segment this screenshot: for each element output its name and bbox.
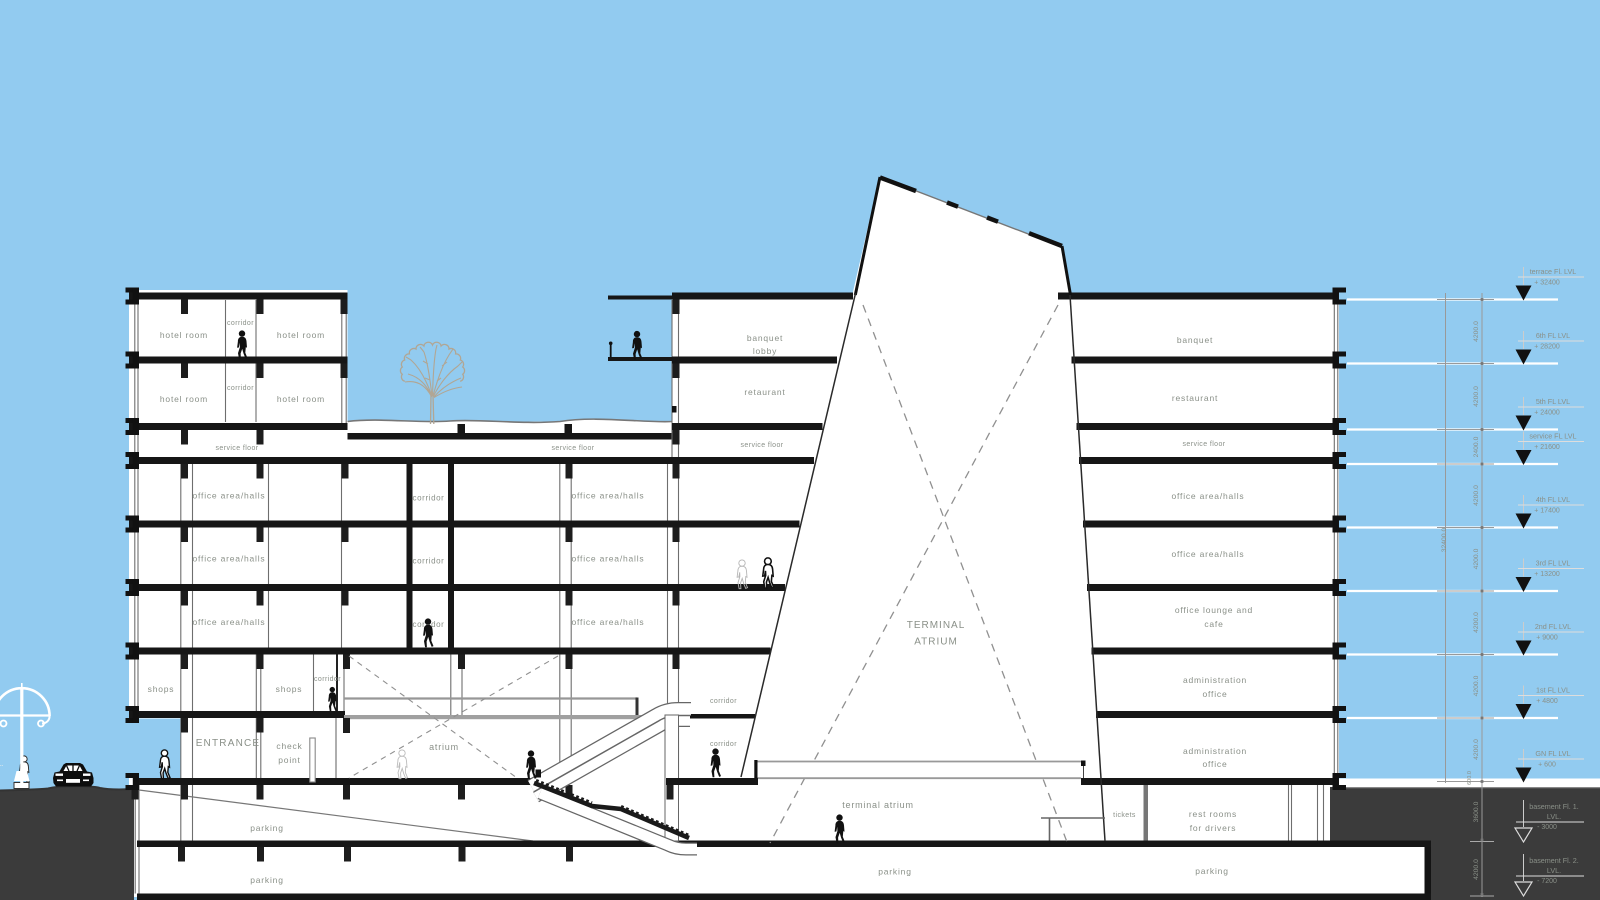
svg-text:2400.0: 2400.0 (1473, 436, 1480, 457)
svg-text:LVL.: LVL. (1547, 866, 1561, 875)
svg-text:shops: shops (148, 684, 175, 694)
svg-text:office area/halls: office area/halls (572, 491, 645, 501)
svg-text:corridor: corridor (227, 385, 254, 392)
svg-text:office: office (1203, 759, 1228, 769)
svg-text:+ 17400: + 17400 (1534, 508, 1560, 515)
svg-text:parking: parking (250, 875, 283, 885)
svg-text:+ 13200: + 13200 (1534, 571, 1560, 578)
svg-text:3rd FL LVL: 3rd FL LVL (1536, 559, 1571, 568)
svg-text:parking: parking (1195, 866, 1228, 876)
svg-text:office area/halls: office area/halls (572, 554, 645, 564)
svg-text:atrium: atrium (429, 742, 459, 752)
svg-text:restaurant: restaurant (1172, 393, 1218, 403)
svg-text:cafe: cafe (1204, 619, 1223, 629)
svg-text:retaurant: retaurant (744, 387, 785, 397)
svg-text:ATRIUM: ATRIUM (914, 637, 958, 648)
svg-text:lobby: lobby (753, 346, 777, 356)
svg-text:basement Fl. 1.: basement Fl. 1. (1529, 802, 1579, 811)
svg-text:+ 21600: + 21600 (1534, 444, 1560, 451)
svg-text:point: point (278, 755, 300, 765)
svg-text:4200.0: 4200.0 (1473, 321, 1480, 342)
svg-text:office lounge and: office lounge and (1175, 605, 1253, 615)
svg-text:4200.0: 4200.0 (1473, 485, 1480, 506)
svg-text:4200.0: 4200.0 (1473, 859, 1480, 880)
svg-text:parking: parking (878, 867, 911, 877)
svg-text:shops: shops (276, 684, 303, 694)
svg-text:4200.0: 4200.0 (1473, 386, 1480, 407)
svg-text:hotel room: hotel room (277, 394, 325, 404)
svg-text:office area/halls: office area/halls (193, 554, 266, 564)
svg-text:ENTRANCE: ENTRANCE (196, 738, 261, 749)
svg-text:4200.0: 4200.0 (1473, 612, 1480, 633)
svg-text:corridor: corridor (227, 320, 254, 327)
svg-text:office area/halls: office area/halls (193, 617, 266, 627)
svg-text:- 3000: - 3000 (1537, 824, 1557, 831)
svg-text:hotel room: hotel room (160, 330, 208, 340)
svg-text:- 7200: - 7200 (1537, 878, 1557, 885)
svg-text:administration: administration (1183, 675, 1247, 685)
svg-text:banquet: banquet (1177, 335, 1213, 345)
svg-text:office: office (1203, 689, 1228, 699)
svg-text:corridor: corridor (413, 494, 445, 503)
svg-text:for drivers: for drivers (1190, 823, 1237, 833)
svg-text:rest rooms: rest rooms (1189, 809, 1237, 819)
svg-text:service FL LVL: service FL LVL (1529, 432, 1576, 441)
svg-text:office area/halls: office area/halls (1172, 549, 1245, 559)
svg-text:office area/halls: office area/halls (1172, 491, 1245, 501)
svg-text:5th FL LVL: 5th FL LVL (1536, 397, 1570, 406)
svg-text:service floor: service floor (1183, 441, 1226, 448)
svg-text:corridor: corridor (314, 676, 341, 683)
svg-text:service floor: service floor (216, 445, 259, 452)
svg-text:LVL.: LVL. (1547, 812, 1561, 821)
svg-text:+ 600: + 600 (1538, 762, 1556, 769)
svg-text:+ 28200: + 28200 (1534, 344, 1560, 351)
svg-text:GN FL LVL: GN FL LVL (1535, 749, 1570, 758)
svg-text:1st FL LVL: 1st FL LVL (1536, 686, 1570, 695)
svg-text:+ 4800: + 4800 (1536, 698, 1558, 705)
svg-text:+ 9000: + 9000 (1536, 635, 1558, 642)
svg-text:4200.0: 4200.0 (1473, 675, 1480, 696)
svg-text:tickets: tickets (1113, 812, 1136, 819)
svg-text:+ 32400: + 32400 (1534, 280, 1560, 287)
svg-text:TERMINAL: TERMINAL (907, 620, 966, 631)
svg-text:check: check (276, 741, 302, 751)
svg-text:4200.0: 4200.0 (1473, 739, 1480, 760)
svg-text:4th FL LVL: 4th FL LVL (1536, 495, 1570, 504)
svg-text:hotel room: hotel room (160, 394, 208, 404)
svg-text:corridor: corridor (413, 557, 445, 566)
svg-text:6th FL LVL: 6th FL LVL (1536, 331, 1570, 340)
svg-text:office area/halls: office area/halls (572, 617, 645, 627)
svg-text:2nd FL LVL: 2nd FL LVL (1535, 622, 1571, 631)
svg-text:parking: parking (250, 823, 283, 833)
svg-text:service floor: service floor (552, 445, 595, 452)
svg-text:banquet: banquet (747, 333, 783, 343)
svg-text:hotel room: hotel room (277, 330, 325, 340)
svg-text:basement Fl. 2.: basement Fl. 2. (1529, 856, 1579, 865)
svg-text:service floor: service floor (741, 442, 784, 449)
svg-text:3600.0: 3600.0 (1473, 801, 1480, 822)
svg-text:corridor: corridor (710, 741, 737, 748)
svg-text:corridor: corridor (710, 698, 737, 705)
svg-text:4200.0: 4200.0 (1473, 548, 1480, 569)
svg-text:office area/halls: office area/halls (193, 491, 266, 501)
svg-text:600.0: 600.0 (1467, 771, 1473, 785)
svg-text:32400.0: 32400.0 (1441, 528, 1448, 553)
svg-text:terminal atrium: terminal atrium (842, 800, 914, 810)
svg-text:administration: administration (1183, 746, 1247, 756)
svg-text:terrace Fl. LVL: terrace Fl. LVL (1530, 267, 1577, 276)
svg-text:+ 24000: + 24000 (1534, 410, 1560, 417)
svg-text:L.: L. (0, 761, 4, 768)
